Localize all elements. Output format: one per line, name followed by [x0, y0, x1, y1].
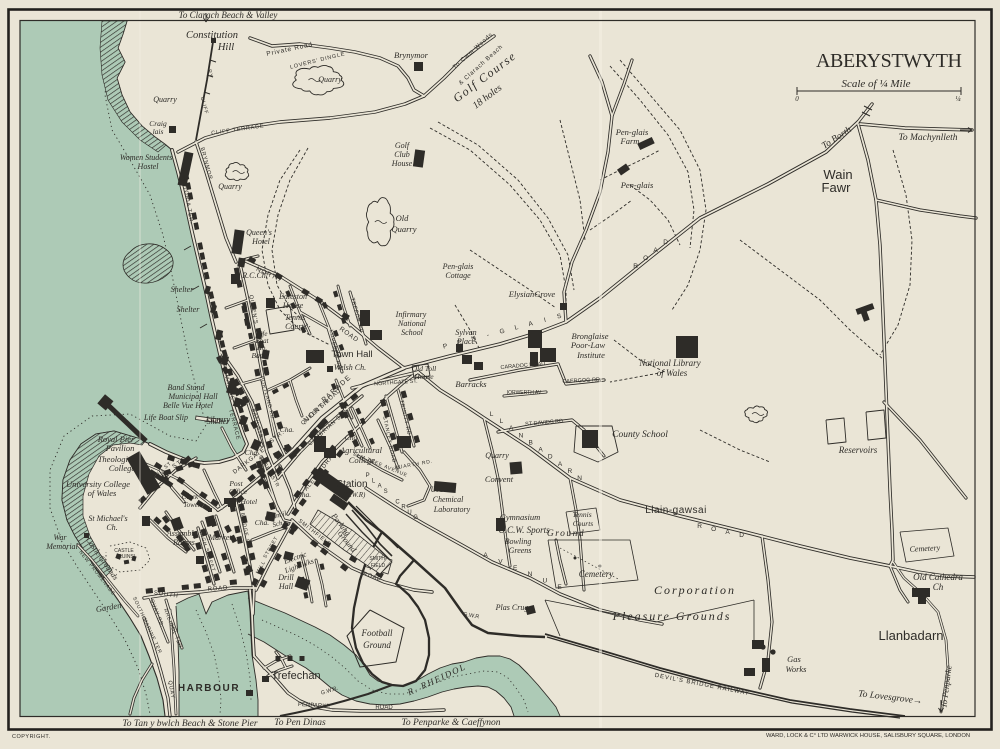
svg-text:Convent: Convent — [485, 474, 514, 484]
svg-text:A: A — [538, 447, 543, 454]
svg-text:To Pen Dinas: To Pen Dinas — [274, 718, 326, 728]
svg-text:To Penparke & Caeffynon: To Penparke & Caeffynon — [401, 717, 500, 728]
svg-text:Shelter: Shelter — [177, 305, 201, 314]
svg-text:G: G — [413, 515, 418, 521]
svg-text:L: L — [490, 411, 494, 418]
svg-text:U: U — [407, 510, 412, 516]
svg-text:COPYRIGHT.: COPYRIGHT. — [12, 734, 51, 740]
svg-text:Corporation: Corporation — [654, 583, 736, 597]
svg-text:War: War — [53, 533, 67, 542]
svg-text:Cemetery: Cemetery — [579, 569, 613, 579]
svg-text:ROAD: ROAD — [375, 705, 393, 711]
svg-text:Assembly: Assembly — [166, 529, 198, 538]
svg-text:U: U — [542, 578, 548, 585]
svg-text:Ground: Ground — [363, 640, 391, 650]
svg-text:Plas Crug: Plas Crug — [495, 603, 529, 612]
svg-text:WARD, LOCK & C° LTD WARWICK HO: WARD, LOCK & C° LTD WARWICK HOUSE, SALIS… — [766, 733, 970, 739]
svg-text:Hall: Hall — [278, 582, 294, 591]
svg-text:S: S — [384, 489, 389, 495]
svg-text:Institute: Institute — [576, 350, 605, 360]
svg-text:P: P — [366, 473, 371, 479]
svg-text:Scale of ¼ Mile: Scale of ¼ Mile — [841, 78, 910, 90]
svg-text:V: V — [498, 558, 503, 565]
svg-text:U.C.W.: U.C.W. — [430, 485, 453, 494]
svg-text:of Wales: of Wales — [657, 368, 688, 378]
svg-text:(RUINS): (RUINS) — [117, 554, 136, 560]
svg-text:College: College — [109, 463, 136, 473]
svg-text:D: D — [663, 239, 669, 246]
svg-text:House: House — [391, 159, 413, 168]
svg-text:Infirmary: Infirmary — [395, 310, 427, 319]
svg-text:N: N — [519, 432, 525, 439]
svg-text:Ch: Ch — [933, 582, 944, 592]
svg-text:Tennis: Tennis — [285, 313, 306, 322]
svg-text:D: D — [739, 532, 745, 539]
svg-text:To Clarach Beach & Valley: To Clarach Beach & Valley — [179, 10, 278, 20]
svg-text:O: O — [643, 255, 649, 262]
svg-text:Quarry: Quarry — [485, 451, 509, 460]
svg-text:Works: Works — [786, 664, 808, 674]
svg-text:A: A — [558, 461, 563, 468]
svg-text:Station: Station — [336, 479, 367, 490]
svg-text:Old Cathedra: Old Cathedra — [913, 572, 963, 582]
svg-text:Fawr: Fawr — [822, 180, 852, 195]
svg-text:Women Students: Women Students — [120, 153, 172, 162]
svg-text:Memorial: Memorial — [45, 542, 78, 551]
svg-text:L: L — [372, 478, 376, 484]
svg-text:Football: Football — [361, 628, 393, 638]
svg-text:Band Stand: Band Stand — [167, 383, 205, 392]
svg-text:E: E — [513, 565, 518, 572]
svg-text:N: N — [528, 571, 534, 578]
svg-text:L: L — [500, 418, 504, 425]
svg-text:Cemetery: Cemetery — [909, 543, 941, 554]
svg-text:R: R — [401, 505, 406, 511]
svg-text:Trefechan: Trefechan — [271, 670, 320, 682]
svg-text:A: A — [725, 529, 730, 536]
svg-text:Quarry: Quarry — [218, 182, 242, 191]
svg-text:Reservoirs: Reservoirs — [838, 445, 878, 455]
svg-text:Life Boat Slip: Life Boat Slip — [143, 413, 188, 422]
svg-text:Hill: Hill — [217, 42, 234, 53]
svg-text:Market: Market — [207, 533, 232, 542]
svg-text:Quarry: Quarry — [153, 95, 177, 104]
svg-text:Ch.: Ch. — [106, 523, 117, 532]
svg-text:(G.W.R): (G.W.R) — [343, 491, 366, 499]
svg-text:Baths: Baths — [251, 351, 268, 360]
svg-text:Shelter: Shelter — [171, 285, 195, 294]
svg-text:C: C — [395, 499, 400, 505]
svg-text:Farm: Farm — [620, 136, 640, 146]
svg-text:Chemical: Chemical — [433, 495, 464, 504]
svg-text:Tennis: Tennis — [572, 510, 591, 519]
svg-text:Pavilion: Pavilion — [105, 443, 135, 453]
svg-text:To Tan y bwlch Beach & Stone P: To Tan y bwlch Beach & Stone Pier — [122, 719, 257, 729]
svg-text:Llain-gawsai: Llain-gawsai — [645, 505, 707, 516]
svg-text:E: E — [557, 584, 562, 591]
svg-text:A: A — [378, 484, 383, 490]
svg-text:A: A — [509, 425, 514, 432]
svg-text:SMITH-: SMITH- — [369, 556, 387, 562]
svg-text:Golf: Golf — [395, 141, 411, 150]
svg-text:Poor-Law: Poor-Law — [570, 340, 606, 350]
svg-text:Cha.: Cha. — [255, 518, 270, 527]
svg-text:Gymnasium: Gymnasium — [500, 512, 541, 522]
svg-text:Pen-glais: Pen-glais — [620, 180, 654, 190]
svg-text:Drill: Drill — [277, 573, 294, 582]
svg-text:Club: Club — [394, 150, 410, 159]
svg-text:Edleston: Edleston — [278, 292, 307, 301]
svg-text:National: National — [397, 319, 427, 328]
svg-text:Library: Library — [205, 415, 231, 424]
svg-text:Clock: Clock — [182, 493, 199, 501]
svg-text:ElysianGrove: ElysianGrove — [508, 289, 556, 299]
svg-text:Cha.: Cha. — [297, 490, 312, 499]
svg-text:N: N — [577, 475, 583, 482]
svg-text:A: A — [483, 552, 488, 559]
svg-text:Greens: Greens — [509, 546, 532, 555]
svg-text:House: House — [282, 301, 304, 310]
svg-text:IORWERTH AV: IORWERTH AV — [507, 390, 542, 396]
svg-text:County School: County School — [612, 430, 668, 440]
svg-text:Office: Office — [229, 487, 248, 496]
svg-text:Belle Vue Hotel: Belle Vue Hotel — [163, 401, 214, 410]
svg-text:Tower: Tower — [183, 501, 201, 509]
svg-text:To Machynlleth: To Machynlleth — [898, 133, 957, 143]
svg-text:B: B — [529, 439, 534, 446]
svg-text:Courts: Courts — [285, 322, 307, 331]
svg-text:Barracks: Barracks — [455, 379, 487, 389]
svg-text:Quarry: Quarry — [318, 75, 342, 84]
svg-text:R: R — [697, 523, 703, 530]
svg-text:Constitution: Constitution — [186, 30, 238, 41]
svg-text:National Library: National Library — [638, 358, 700, 368]
svg-text:Rooms: Rooms — [172, 538, 195, 547]
svg-text:Lion Hotel: Lion Hotel — [224, 497, 257, 506]
svg-text:Hotel: Hotel — [251, 237, 271, 246]
svg-text:Pen-glais: Pen-glais — [442, 262, 474, 271]
svg-text:U.C.W. Sports: U.C.W. Sports — [498, 525, 550, 535]
svg-text:R: R — [567, 468, 573, 475]
svg-text:Quarry: Quarry — [391, 224, 416, 234]
svg-text:Cottage: Cottage — [445, 271, 471, 280]
svg-text:R: R — [633, 263, 639, 270]
svg-text:HARBOUR: HARBOUR — [178, 683, 240, 694]
svg-text:Laboratory: Laboratory — [433, 505, 471, 514]
svg-text:A: A — [653, 247, 658, 254]
svg-text:Gas: Gas — [787, 654, 801, 664]
svg-text:Queen's: Queen's — [246, 228, 272, 237]
svg-text:Llanbadarn: Llanbadarn — [878, 628, 943, 643]
svg-text:lais: lais — [153, 127, 164, 136]
svg-text:Brynymor: Brynymor — [394, 50, 429, 60]
svg-text:0: 0 — [795, 95, 799, 103]
svg-text:Municipal Hall: Municipal Hall — [167, 392, 218, 401]
svg-text:Ground: Ground — [547, 529, 585, 539]
svg-text:Hostel: Hostel — [137, 162, 160, 171]
svg-text:D: D — [548, 454, 554, 461]
svg-text:School: School — [401, 328, 424, 337]
svg-text:Cha.: Cha. — [345, 433, 360, 442]
svg-text:Bowling: Bowling — [505, 537, 532, 546]
svg-text:Courts: Courts — [573, 519, 594, 528]
svg-text:St Michael's: St Michael's — [88, 514, 127, 523]
svg-text:ABERYSTWYTH: ABERYSTWYTH — [816, 50, 962, 72]
svg-text:Pleasure Grounds: Pleasure Grounds — [612, 609, 732, 623]
svg-text:of Wales: of Wales — [88, 488, 117, 498]
svg-text:O: O — [711, 526, 717, 533]
svg-text:¼: ¼ — [955, 95, 961, 103]
svg-text:Old: Old — [396, 213, 410, 223]
svg-text:FIELD: FIELD — [371, 563, 386, 569]
